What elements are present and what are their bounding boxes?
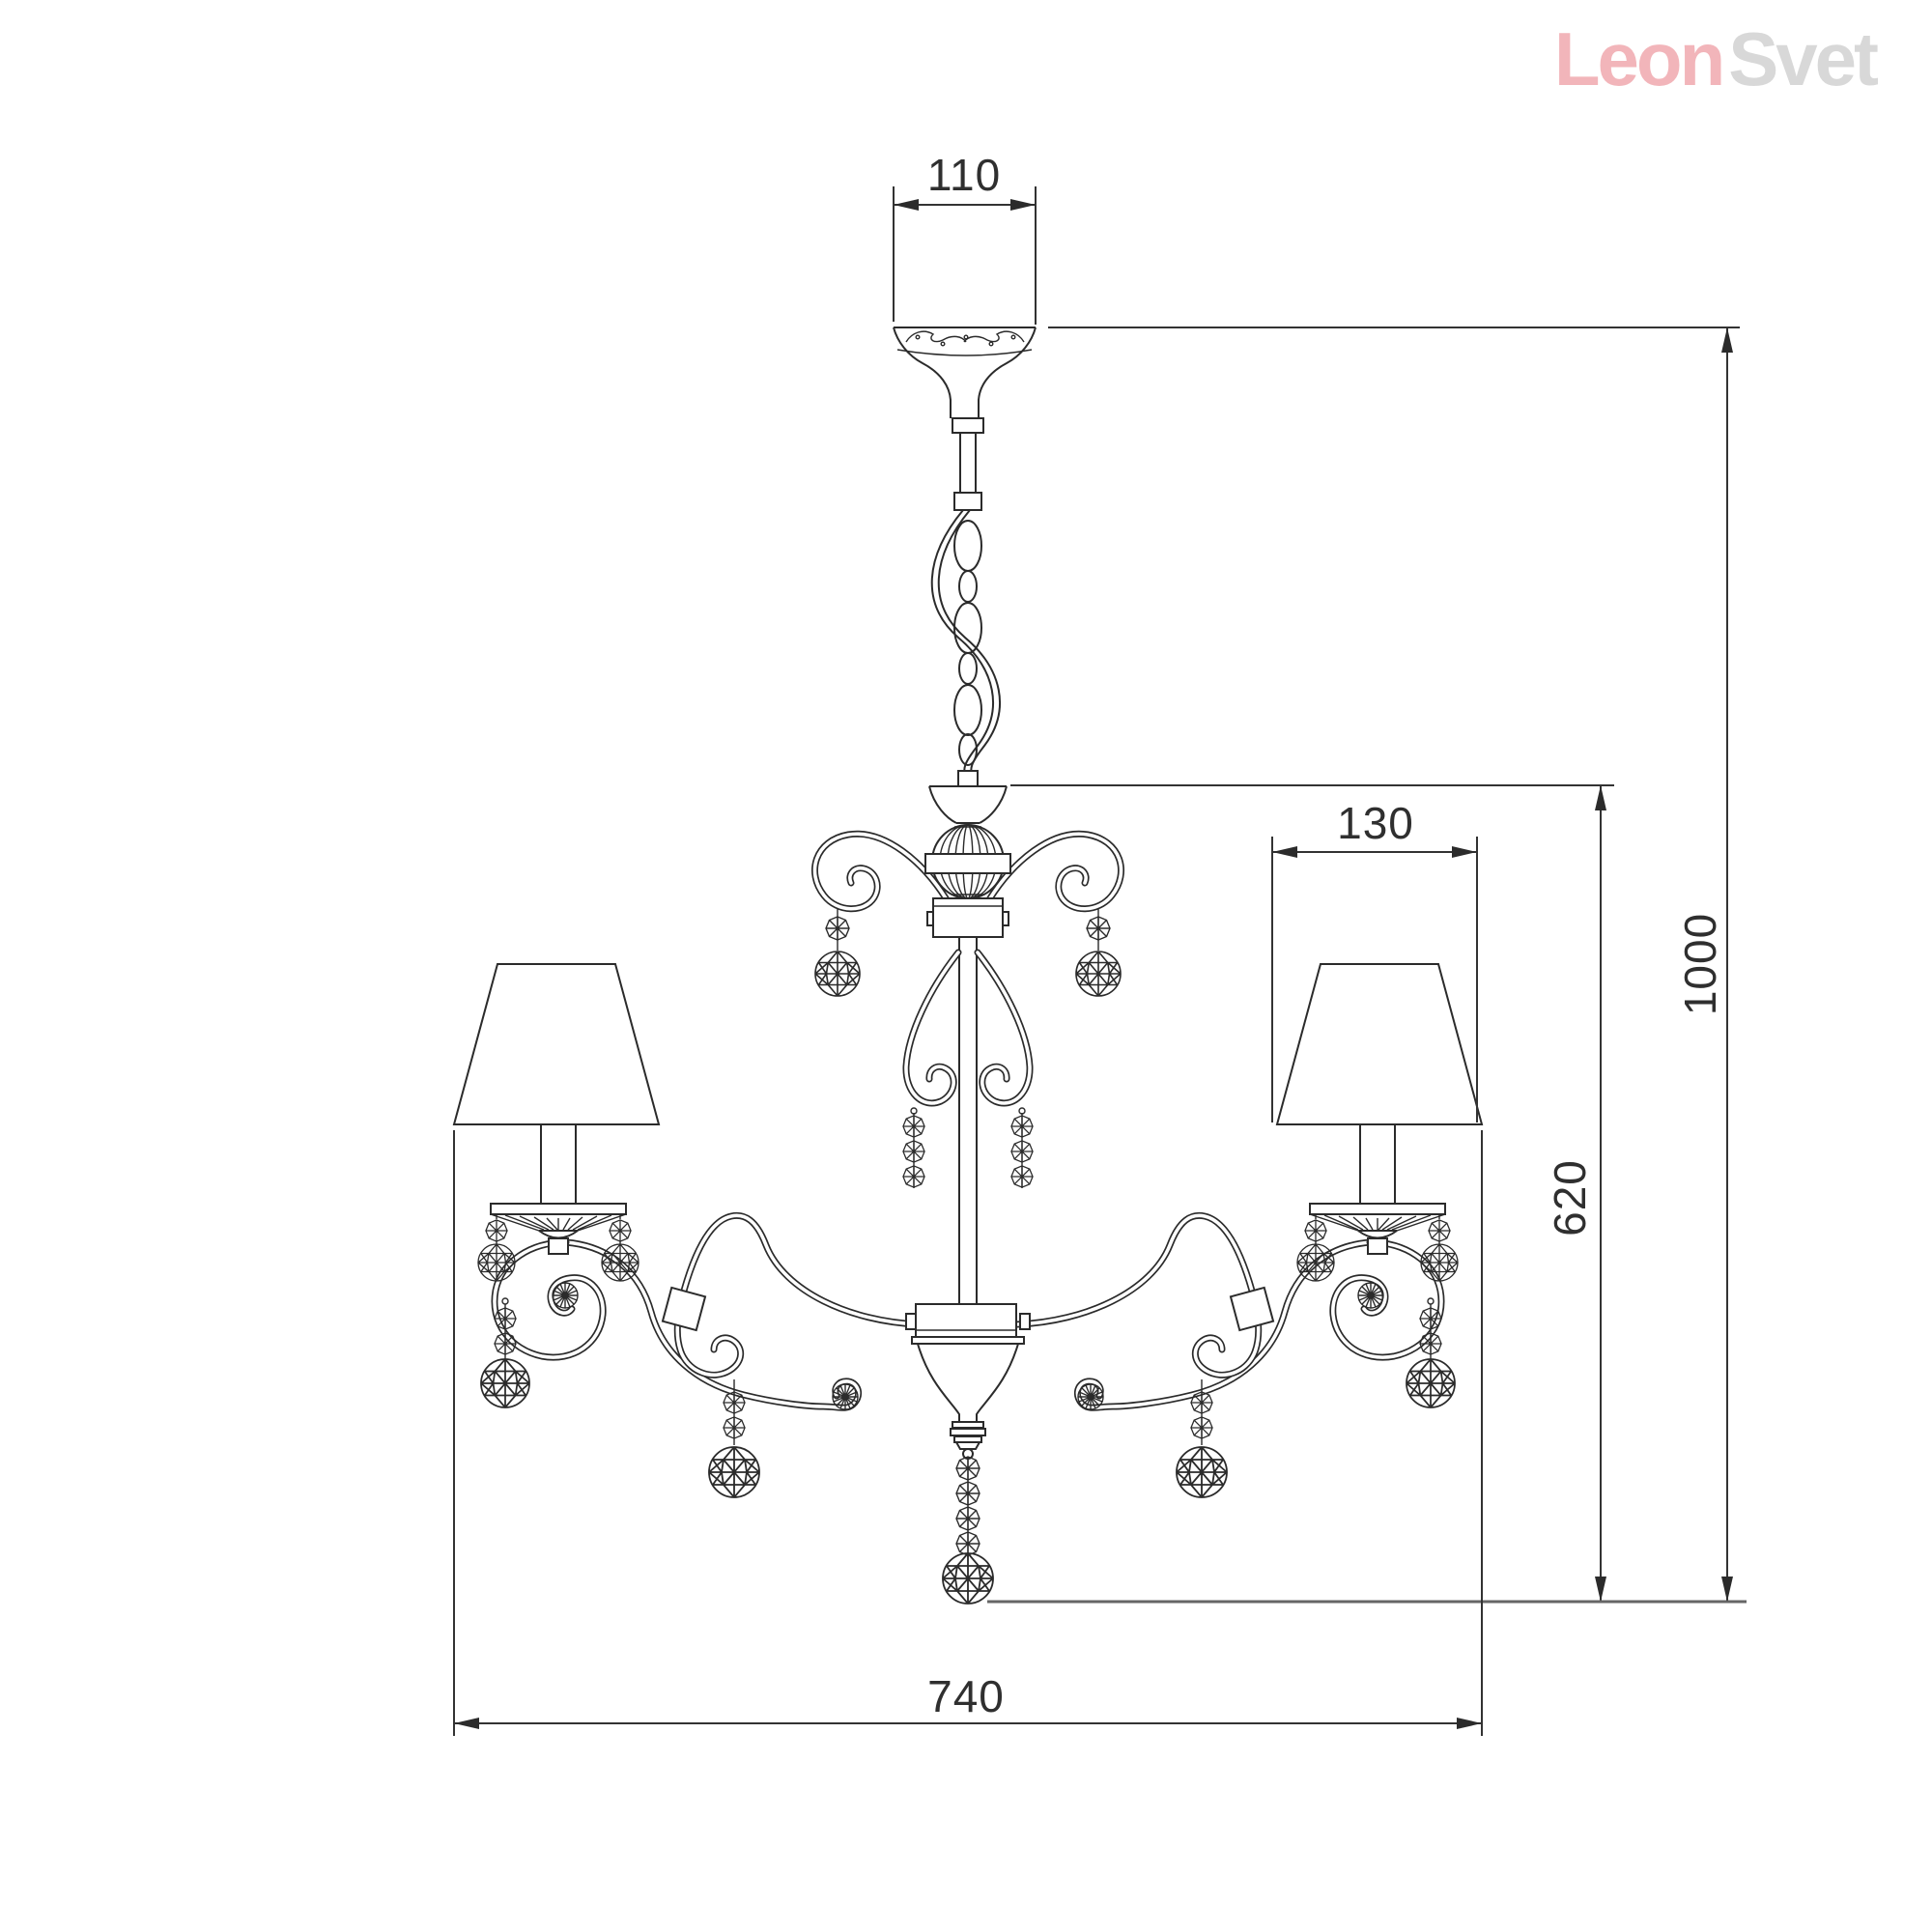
technical-drawing: 110 130 620 1000 740 xyxy=(0,0,1932,1932)
brand-logo-primary: Leon xyxy=(1554,21,1722,97)
left-arm-assembly xyxy=(454,834,958,1497)
canopy-ornament xyxy=(906,331,1024,342)
suspension-chain xyxy=(932,433,1000,786)
center-column xyxy=(906,786,1030,1459)
dimension-label-body-height: 620 xyxy=(1545,1159,1595,1236)
center-stem xyxy=(959,937,977,1306)
dimension-canopy-width: 110 xyxy=(894,150,1036,325)
dimension-label-canopy-width: 110 xyxy=(927,150,1001,200)
dimension-label-overall-height: 1000 xyxy=(1675,913,1725,1015)
ceiling-canopy xyxy=(894,327,1036,433)
brand-logo-secondary: Svet xyxy=(1728,21,1876,97)
brand-logo: Leon Svet xyxy=(1554,21,1876,97)
center-crystal-drop xyxy=(943,1457,993,1604)
dimension-label-shade-width: 130 xyxy=(1337,798,1414,848)
dimension-label-overall-width: 740 xyxy=(927,1671,1005,1721)
page: 110 130 620 1000 740 Leon Svet xyxy=(0,0,1932,1932)
right-arm-assembly xyxy=(978,834,1482,1497)
